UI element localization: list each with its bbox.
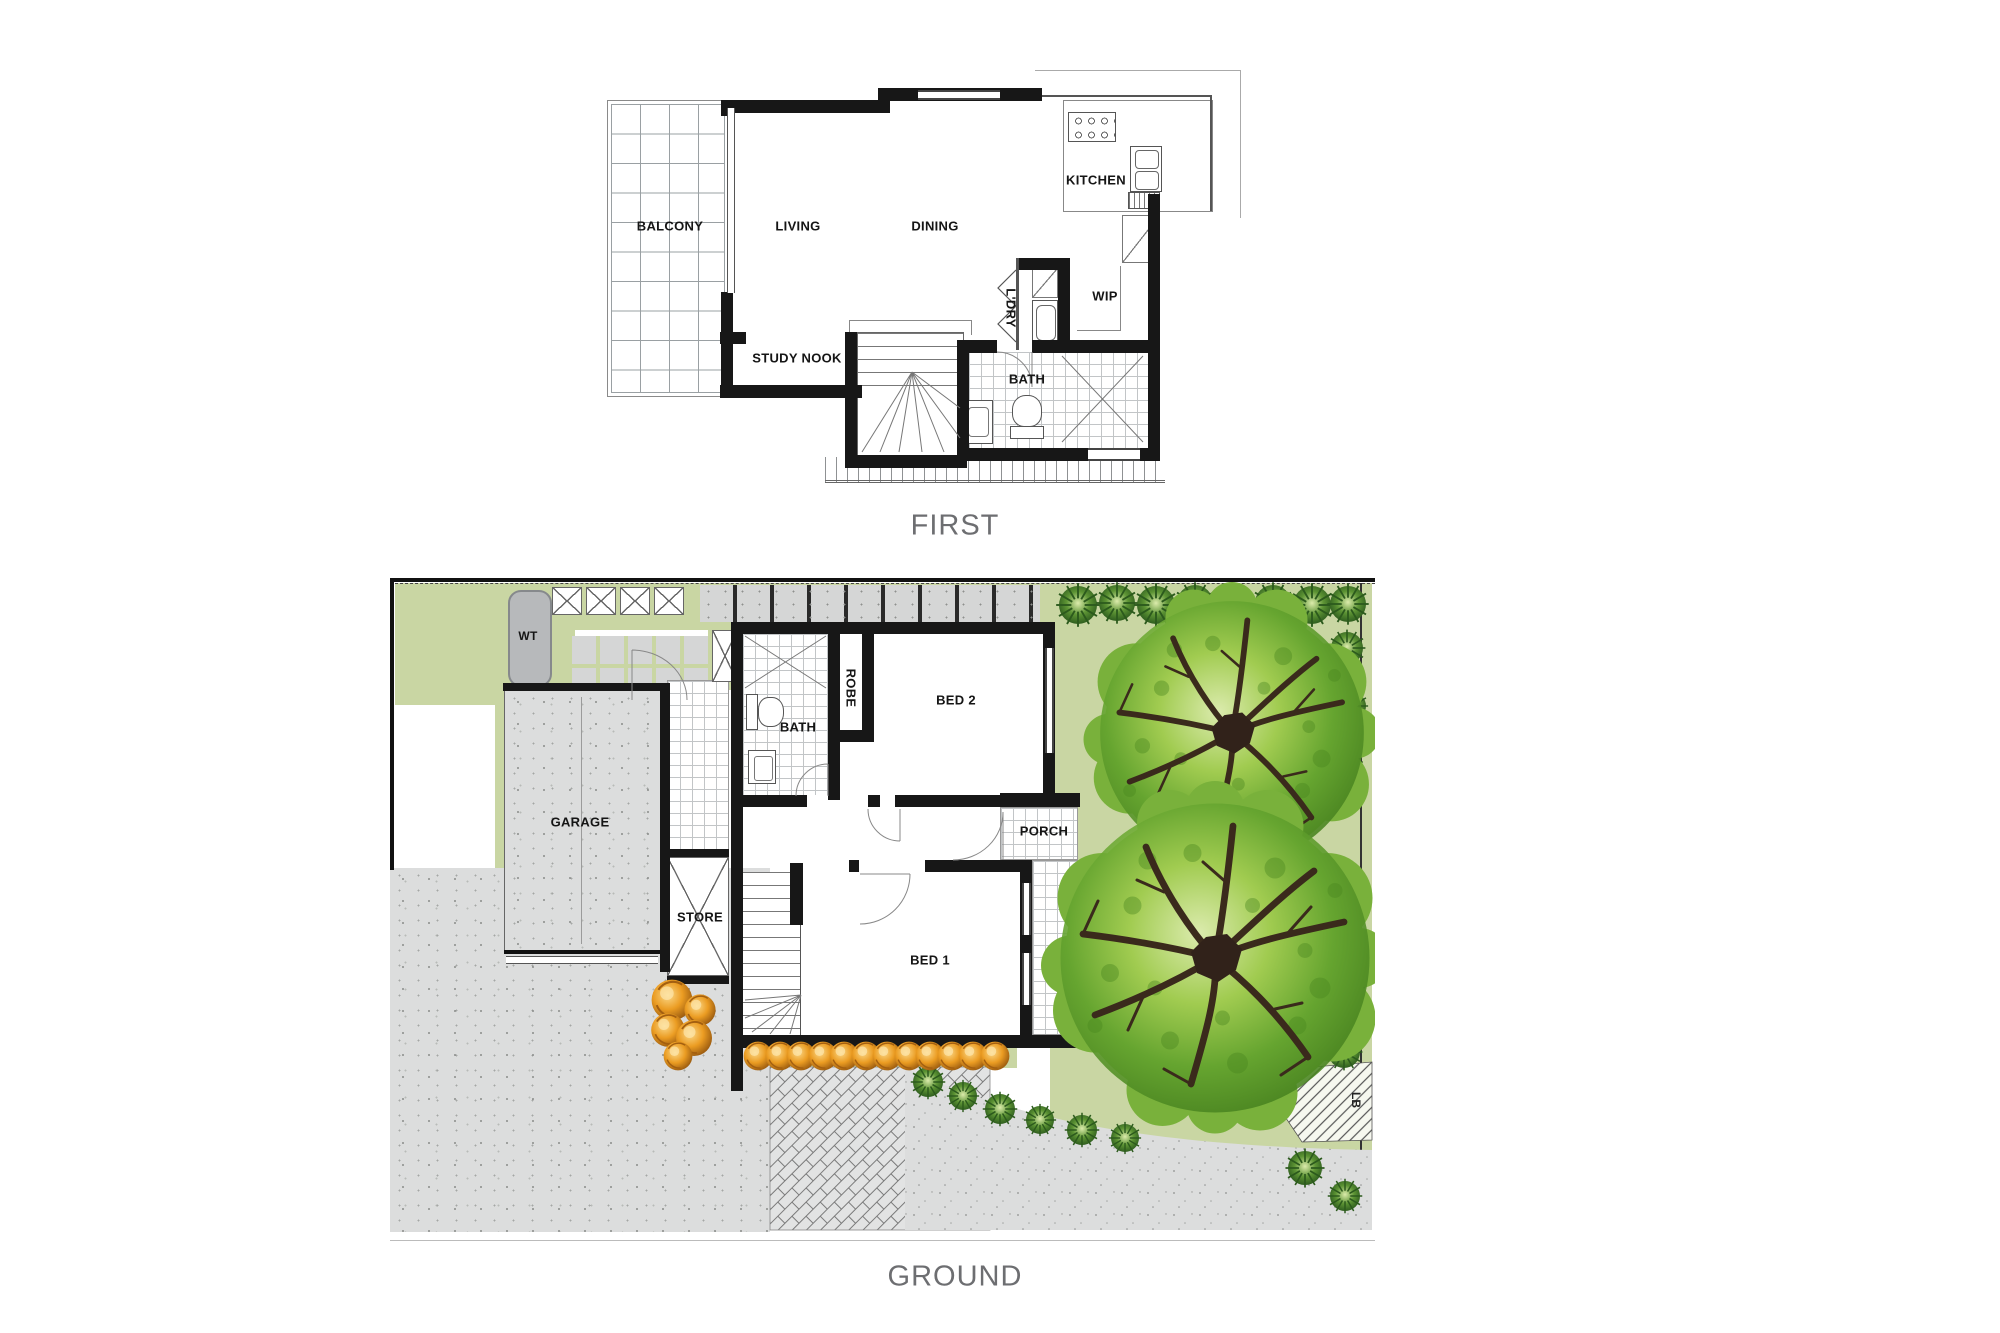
label-kitchen: KITCHEN — [1066, 174, 1126, 187]
label-water-tank: WT — [518, 630, 537, 642]
label-living: LIVING — [775, 220, 820, 233]
orange-shrub-row — [744, 1042, 1010, 1071]
label-dining: DINING — [911, 220, 958, 233]
first-floor-decor — [600, 68, 1248, 488]
label-bath-ground: BATH — [780, 721, 816, 734]
orange-shrub-cluster — [651, 980, 715, 1071]
label-letterbox: LB — [1349, 1092, 1363, 1108]
first-level-title: FIRST — [911, 512, 1000, 541]
ground-decor: LB — [390, 578, 1375, 1240]
label-bath-first: BATH — [1009, 373, 1045, 386]
label-balcony: BALCONY — [637, 220, 703, 233]
first-floor-plan: BALCONY LIVING DINING KITCHEN WIP L'DRY … — [600, 68, 1248, 488]
floor-plan-page: BALCONY LIVING DINING KITCHEN WIP L'DRY … — [0, 0, 2000, 1333]
label-store: STORE — [677, 911, 723, 924]
label-laundry: L'DRY — [1005, 288, 1018, 328]
ground-floor-plan: LB WT GARAGE BATH ROBE BED 2 PORCH STORE… — [390, 578, 1375, 1241]
label-bed1: BED 1 — [910, 954, 950, 967]
label-robe: ROBE — [845, 669, 858, 708]
door-arcs — [632, 650, 1003, 924]
label-wip: WIP — [1092, 290, 1117, 303]
ground-level-title: GROUND — [888, 1263, 1023, 1292]
label-study-nook: STUDY NOOK — [752, 352, 841, 365]
label-porch: PORCH — [1020, 825, 1068, 838]
label-bed2: BED 2 — [936, 694, 976, 707]
label-garage: GARAGE — [551, 816, 610, 829]
